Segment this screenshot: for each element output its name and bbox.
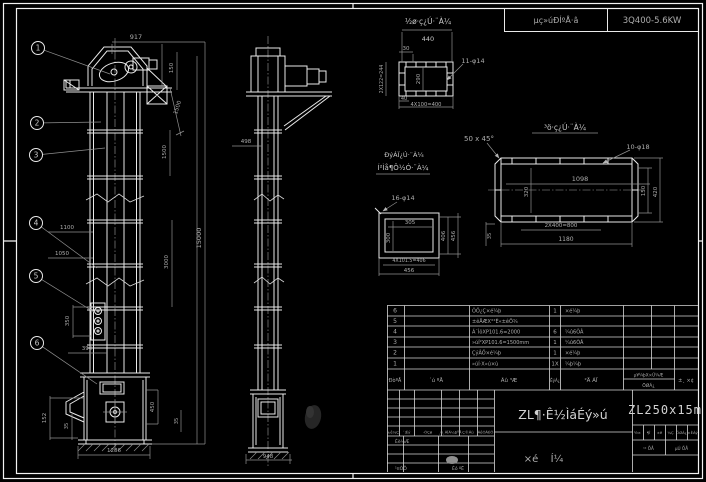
signature-label: Éó ºË <box>452 464 464 472</box>
dim-text: 420 <box>653 186 659 197</box>
sheet-total-label: ¹² ÕÅ <box>643 446 654 451</box>
dim-text: 150 <box>169 62 175 73</box>
front-view <box>48 38 205 459</box>
motor-note-label: µç»úÐÍºÅ·â <box>534 14 579 25</box>
bom-item-name: »úÍ²XP101.6=1500mm <box>472 339 529 346</box>
bom-item-material: ¼û6ÕÂ <box>565 339 584 346</box>
dim-text: ÐýÁÏ¿Ú·¨À¼ <box>384 150 424 159</box>
stage-mark-label: ¼Ç <box>667 430 674 435</box>
dim-text: 498 <box>241 139 252 145</box>
dim-text: 320 <box>524 186 530 197</box>
smudge-mark <box>303 404 324 431</box>
dim-text: 450 <box>150 401 156 412</box>
dim-text: 40 <box>401 96 407 102</box>
revision-header-label: ¸ü¸ÄÎÄ¼þºÅ <box>439 430 462 435</box>
balloon-number: 4 <box>34 219 39 228</box>
dim-text: 456 <box>404 268 415 274</box>
sheet-number-label: µÚ ÕÅ <box>675 446 688 451</box>
bom-item-qty: 6 <box>553 329 557 335</box>
dim-text: 4X100=400 <box>410 102 441 108</box>
bom-item-name: Á´ÌõXP101.6=2000 <box>472 328 520 335</box>
bom-item-material: ¼þ¼þ <box>565 361 581 367</box>
bom-item-no: 3 <box>393 339 397 346</box>
bom-item-no: 4 <box>393 328 397 335</box>
cad-drawing: µç»úÐÍºÅ·â 3Q400-5.6KW <box>0 0 706 482</box>
dim-text: 1100 <box>60 225 74 231</box>
dim-text: 305 <box>405 220 416 226</box>
balloon-number: 2 <box>35 119 40 128</box>
side-view <box>232 36 332 466</box>
dim-text: Í²Ìå¶Ô½Ó·¨À¼ <box>378 163 429 172</box>
dimension-annotations: 9171501500150030001500011001050350390152… <box>42 17 659 460</box>
bom-item-material: ×é¼þ <box>565 308 580 315</box>
stage-mark-label: ¶Î <box>647 430 651 435</box>
balloon-number: 1 <box>36 44 41 53</box>
signature-label: ¹¤ÒÕ <box>395 465 407 472</box>
balloon-number: 6 <box>35 339 40 348</box>
approval-stamp <box>446 456 458 464</box>
stage-mark-label: ½× <box>634 430 641 435</box>
bom-item-name: ÇýÂÖ×é¼þ <box>472 349 501 356</box>
bom-item-qty: 1 <box>553 350 557 356</box>
chamfer-leader <box>487 143 499 158</box>
dim-text: 948 <box>263 454 274 460</box>
stage-mark-label: ÖØÁ¿ <box>676 430 687 435</box>
dim-text: 406 <box>441 230 447 241</box>
dim-text: 150 <box>641 185 647 196</box>
drawing-model-number: ZL250x15m <box>628 403 702 417</box>
balloon-leader <box>42 148 105 154</box>
revision-header-label: ±ê¼Ç <box>387 430 399 435</box>
dim-text: 152 <box>42 413 48 424</box>
bom-item-material: ×é¼þ <box>565 349 580 356</box>
bom-header-qty: ÊýÁ¿ <box>550 378 560 383</box>
revision-header-label: Ç©Ãû <box>462 430 474 435</box>
balloon-number: 5 <box>34 272 39 281</box>
dim-text: 35 <box>64 423 70 429</box>
drawing-title: ZL¶·Ê½ÌáÉý»ú <box>518 407 607 422</box>
dim-text: 10-φ18 <box>626 143 649 151</box>
stage-mark-label: ±ê <box>657 430 663 435</box>
dim-text: 1098 <box>572 175 589 183</box>
dim-text: 300 <box>386 232 392 243</box>
dim-text: 11-φ14 <box>461 57 484 65</box>
balloon-leader <box>41 227 97 268</box>
stage-mark-label: ±ÈÀý <box>687 430 698 435</box>
bom-header-no: ÐòºÅ <box>389 377 402 384</box>
balloon-leader <box>42 347 97 384</box>
dim-text: 1050 <box>55 251 69 257</box>
motor-spec-label: 3Q400-5.6KW <box>623 16 682 26</box>
dim-text: ½ø·ç¿Ú·¨À¼ <box>405 17 452 26</box>
revision-header-label: ´¦Êý <box>403 430 412 435</box>
dim-text: 1500 <box>162 145 168 159</box>
bom-header-weight-unit: µ¥¼þX×Ü¼Æ <box>634 373 664 378</box>
dim-text: 15000 <box>195 228 203 249</box>
dim-text: 4X101.5=406 <box>392 258 425 264</box>
header-strip: µç»úÐÍºÅ·â 3Q400-5.6KW <box>505 9 699 32</box>
dim-text: ³ö·ç¿Ú·¨À¼ <box>544 123 587 132</box>
bom-item-qty: 1 <box>553 309 557 315</box>
signature-label: Éè¼Æ <box>395 437 410 445</box>
title-block: ZL¶·Ê½ÌáÉý»ú ×é Í¼ ZL250x15m ±ê¼Ç´¦Êý·ÖÇ… <box>387 390 702 472</box>
dim-text: 917 <box>130 33 142 41</box>
dim-text: 30 <box>403 46 410 52</box>
balloon-leader <box>44 50 110 74</box>
dim-text: 1500 <box>173 100 183 116</box>
dim-text: 16-φ14 <box>391 194 414 202</box>
bom-item-no: 5 <box>393 318 397 325</box>
balloon-callouts: 123456 <box>30 42 111 385</box>
dim-text: 3000 <box>164 255 170 269</box>
dim-text: 2X400=800 <box>545 223 578 229</box>
dim-text: 1180 <box>558 236 573 243</box>
revision-header-label: ÄêÔÂÈÕ <box>478 430 494 435</box>
dim-text: 350 <box>65 315 71 326</box>
cad-sheet: µç»úÐÍºÅ·â 3Q400-5.6KW <box>0 0 706 482</box>
bom-item-qty: 1 <box>553 340 557 346</box>
drawing-subtitle-char-1: ×é <box>524 453 539 465</box>
bom-header-material: ²Ä ÁÏ <box>584 377 597 384</box>
dim-text: 440 <box>422 35 434 43</box>
dim-text: 290 <box>416 73 422 84</box>
bom-item-material: ¼û6ÕÂ <box>565 328 584 335</box>
balloon-leader <box>43 122 101 123</box>
dim-text: 35 <box>174 418 180 424</box>
bom-item-no: 6 <box>393 308 397 315</box>
balloon-number: 3 <box>34 151 39 160</box>
bom-header-note: ±¸ ×¢ <box>678 378 694 384</box>
dim-text: 456 <box>451 230 457 241</box>
bom-item-qty: 1X <box>551 361 558 367</box>
dim-text: 390 <box>82 346 93 352</box>
drawing-subtitle-char-2: Í¼ <box>551 452 564 465</box>
dim-text: 50 x 45° <box>464 135 494 143</box>
chain-takeup <box>95 308 102 335</box>
bom-header-weight: ÖØÁ¿ <box>642 382 655 389</box>
bom-header-code: ´ú ºÅ <box>429 377 444 384</box>
dim-text: 2X122=244 <box>379 65 385 94</box>
bom-item-no: 2 <box>393 349 397 356</box>
dim-text: 1286 <box>107 448 121 454</box>
revision-header-label: ·ÖÇø <box>423 430 433 435</box>
bom-header-name: Ãû ³Æ <box>501 377 518 384</box>
dim-text: 35 <box>487 233 493 239</box>
bom-item-no: 1 <box>393 360 397 367</box>
bom-item-name: ±êÅÆX°²È«±êÖ¾ <box>472 317 518 325</box>
balloon-leader <box>42 279 94 312</box>
bom-item-name: ÕÖ¿Ç×é¼þ <box>472 308 501 315</box>
bom-item-name: »úÍ·X»ú×ù <box>472 360 498 367</box>
